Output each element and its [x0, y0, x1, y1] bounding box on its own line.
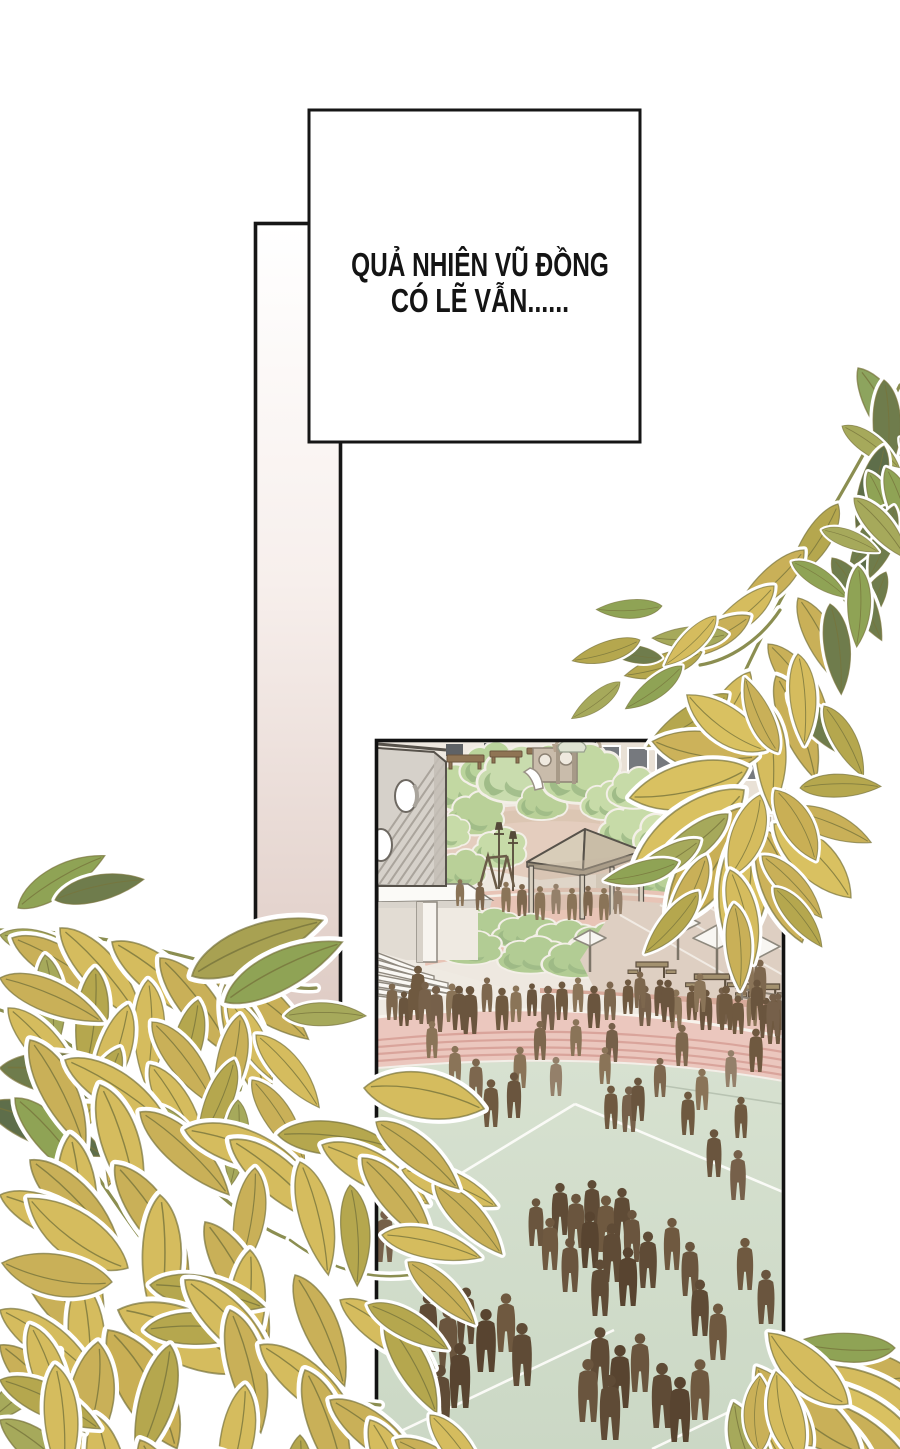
svg-text:CÓ LẼ VẪN......: CÓ LẼ VẪN......	[391, 282, 569, 320]
svg-text:QUẢ NHIÊN VŨ ĐỒNG: QUẢ NHIÊN VŨ ĐỒNG	[351, 245, 609, 284]
